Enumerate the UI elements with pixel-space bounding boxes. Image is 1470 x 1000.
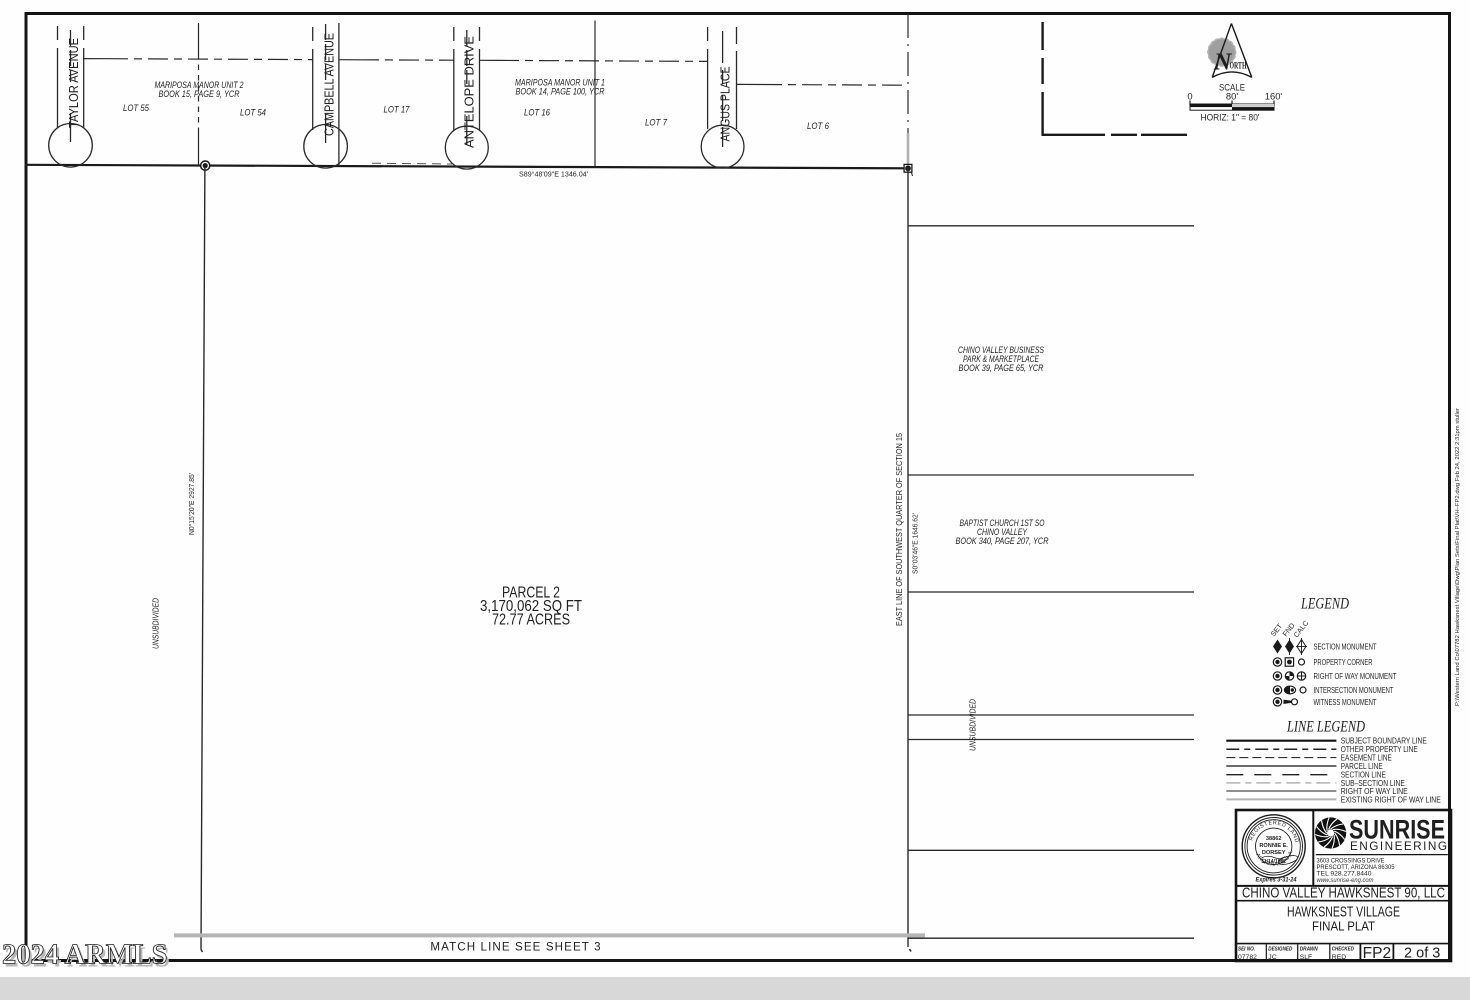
svg-text:LOT 16: LOT 16 <box>524 108 551 119</box>
svg-text:S0°03'46"E 1646.62': S0°03'46"E 1646.62' <box>911 512 920 574</box>
svg-text:CHINO VALLEY HAWKSNEST 90,: CHINO VALLEY HAWKSNEST 90, LLC <box>1242 886 1445 902</box>
svg-text:72.77 ACRES: 72.77 ACRES <box>492 612 570 629</box>
svg-text:DRAWN: DRAWN <box>1300 947 1319 953</box>
svg-text:2024 ARMLS: 2024 ARMLS <box>2 940 167 971</box>
svg-text:LOT 55: LOT 55 <box>123 103 150 114</box>
svg-text:INTERSECTION MONUMENT: INTERSECTION MONUMENT <box>1314 686 1394 695</box>
svg-text:38862: 38862 <box>1266 836 1282 842</box>
svg-text:UNSUBDIVIDED: UNSUBDIVIDED <box>151 598 161 649</box>
svg-text:ORTH: ORTH <box>1230 62 1247 72</box>
svg-text:ANTELOPE DRIVE: ANTELOPE DRIVE <box>463 36 477 148</box>
svg-text:RED: RED <box>1332 954 1346 961</box>
svg-text:07782: 07782 <box>1238 954 1257 961</box>
svg-text:BOOK 14, PAGE 100, YCR: BOOK 14, PAGE 100, YCR <box>516 87 605 98</box>
svg-text:LOT 7: LOT 7 <box>645 118 668 129</box>
svg-text:RONNIE E.: RONNIE E. <box>1259 843 1288 849</box>
svg-text:2 of 3: 2 of 3 <box>1404 946 1440 962</box>
svg-text:CHECKED: CHECKED <box>1332 947 1355 953</box>
svg-text:RIGHT OF WAY MONUMENT: RIGHT OF WAY MONUMENT <box>1314 672 1397 681</box>
svg-text:DORSEY: DORSEY <box>1262 850 1286 856</box>
svg-text:0: 0 <box>1187 91 1192 102</box>
svg-text:BOOK 340, PAGE 207, YCR: BOOK 340, PAGE 207, YCR <box>956 536 1050 546</box>
svg-text:SECTION MONUMENT: SECTION MONUMENT <box>1314 643 1377 652</box>
svg-text:LINE LEGEND: LINE LEGEND <box>1286 719 1365 736</box>
svg-text:FP2: FP2 <box>1363 945 1391 962</box>
svg-text:PROPERTY CORNER: PROPERTY CORNER <box>1314 658 1373 667</box>
svg-text:SLF: SLF <box>1300 954 1312 961</box>
svg-text:LOT 17: LOT 17 <box>384 105 411 116</box>
svg-text:160': 160' <box>1265 91 1283 102</box>
svg-text:80': 80' <box>1226 91 1238 102</box>
svg-text:WITNESS MONUMENT: WITNESS MONUMENT <box>1314 698 1377 707</box>
svg-text:EXISTING RIGHT OF WAY LINE: EXISTING RIGHT OF WAY LINE <box>1341 794 1441 804</box>
svg-text:TAYLOR AVENUE: TAYLOR AVENUE <box>67 38 81 128</box>
svg-text:EAST LINE OF SOUTHWEST QUA: EAST LINE OF SOUTHWEST QUARTER OF SECTIO… <box>894 433 904 626</box>
svg-text:Expires 3-31-24: Expires 3-31-24 <box>1256 877 1298 884</box>
svg-text:LEGEND: LEGEND <box>1300 596 1349 613</box>
svg-text:HORIZ: 1" = 80': HORIZ: 1" = 80' <box>1201 113 1260 123</box>
svg-text:ENGINEERING: ENGINEERING <box>1350 839 1447 853</box>
svg-text:CAMPBELL AVENUE: CAMPBELL AVENUE <box>323 33 337 136</box>
svg-text:N0°15'20"E 2927.85': N0°15'20"E 2927.85' <box>187 472 196 535</box>
svg-text:DESIGNED: DESIGNED <box>1268 947 1293 953</box>
svg-text:www.sunrise-eng.com: www.sunrise-eng.com <box>1317 877 1374 884</box>
svg-text:JC: JC <box>1268 954 1276 961</box>
svg-text:S89°48'09"E 1346.04': S89°48'09"E 1346.04' <box>519 170 589 179</box>
svg-text:BOOK 39, PAGE 65, YCR: BOOK 39, PAGE 65, YCR <box>959 363 1045 373</box>
svg-text:LOT 6: LOT 6 <box>807 121 830 132</box>
svg-text:FINAL PLAT: FINAL PLAT <box>1312 919 1375 934</box>
svg-text:BOOK 15, PAGE 9, YCR: BOOK 15, PAGE 9, YCR <box>159 89 240 100</box>
svg-text:LOT 54: LOT 54 <box>240 108 266 119</box>
svg-text:P:\Western Land Co\07782 Hawks: P:\Western Land Co\07782 Hawksnest Villa… <box>1455 408 1461 706</box>
svg-text:MATCH LINE SEE SHEET 3: MATCH LINE SEE SHEET 3 <box>430 941 601 954</box>
svg-text:UNSUBDIVIDED: UNSUBDIVIDED <box>969 699 978 751</box>
svg-text:ANGUS PLACE: ANGUS PLACE <box>719 67 733 142</box>
svg-text:SEI NO.: SEI NO. <box>1238 947 1255 953</box>
